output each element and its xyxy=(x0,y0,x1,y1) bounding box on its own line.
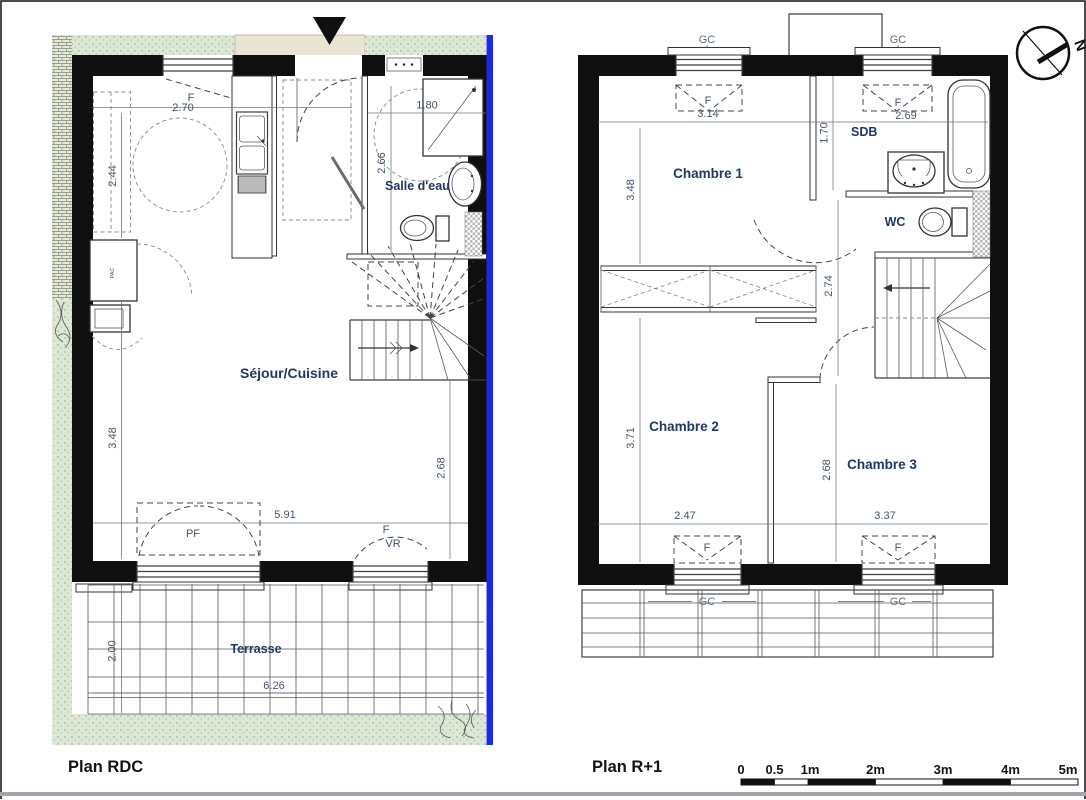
toilet-rdc xyxy=(401,216,450,242)
floor-plan-page: PAC xyxy=(0,0,1086,800)
plan-r1: GC GC xyxy=(578,14,1008,657)
rdc-top-window-kitchen xyxy=(163,55,233,98)
dim-value: 5.91 xyxy=(274,509,295,521)
bath-door-leaf xyxy=(332,157,364,209)
kitchen-hall-wall xyxy=(272,76,277,256)
dim-label: F xyxy=(705,95,712,107)
terrace-grid xyxy=(88,584,484,714)
garden-bottom xyxy=(72,714,486,745)
dim-value: 6.26 xyxy=(263,680,284,692)
scale-tick: 0.5 xyxy=(765,762,783,777)
room-label-wc: WC xyxy=(885,215,906,229)
washbasin-sdb xyxy=(888,152,944,193)
dim-label: F xyxy=(704,542,711,554)
hall-bath-wall xyxy=(362,76,368,254)
room-label-terrasse: Terrasse xyxy=(230,642,281,656)
hedge-strip xyxy=(52,35,72,300)
dim-value: 2.47 xyxy=(674,510,695,522)
dim-value: 2.66 xyxy=(376,152,388,173)
landing-door-swing xyxy=(754,220,856,263)
r1-top-window-left xyxy=(668,45,750,76)
dim-value: 3.48 xyxy=(107,427,119,448)
stair-direction-arrow xyxy=(410,344,419,352)
dim-value: 3.48 xyxy=(625,179,637,200)
room-label-sejour: Séjour/Cuisine xyxy=(240,365,338,381)
dim-label: F xyxy=(895,542,902,554)
plan-rdc-title: Plan RDC xyxy=(68,758,143,776)
shower xyxy=(423,79,483,156)
property-limit-line xyxy=(487,35,494,745)
ch3-door-swing xyxy=(820,327,874,379)
dim-value: 2.00 xyxy=(107,640,119,661)
dim-label: F xyxy=(895,97,902,109)
compass: N xyxy=(1017,27,1086,79)
ch2-ch3-wall xyxy=(768,377,774,563)
dim-value: 1.70 xyxy=(819,122,831,143)
scale-tick: 3m xyxy=(934,762,953,777)
turning-circle-kitchen xyxy=(133,118,227,212)
rdc-entry-door xyxy=(295,55,362,142)
room-label-chambre3: Chambre 3 xyxy=(847,457,917,472)
garden-top-left xyxy=(72,35,235,56)
kitchen-cabinets-dashed xyxy=(94,92,131,232)
pac-label: PAC xyxy=(110,268,116,279)
dim-value: 2.69 xyxy=(895,110,916,122)
rdc-window-f-vr xyxy=(349,561,432,590)
tile-strip-rdc xyxy=(465,212,482,256)
scale-tick: 0 xyxy=(737,762,744,777)
gc-label: GC xyxy=(699,34,716,46)
footer-rule xyxy=(0,792,1086,796)
garden-left xyxy=(52,300,72,745)
dim-value: 1.80 xyxy=(416,100,437,112)
toilet-r1 xyxy=(919,208,967,236)
tile-strip-r1 xyxy=(973,191,990,257)
scale-tick: 5m xyxy=(1059,762,1078,777)
r1-top-window-right xyxy=(855,45,940,76)
dim-value: 2.68 xyxy=(436,457,448,478)
dim-label: VR xyxy=(385,538,400,550)
dim-value: 2.44 xyxy=(107,165,119,186)
washbasin-rdc xyxy=(449,162,482,206)
scale-tick: 4m xyxy=(1001,762,1020,777)
ch2-landing-stub xyxy=(768,377,820,383)
ch1-landing-wall xyxy=(810,76,816,200)
scale-tick: 1m xyxy=(801,762,820,777)
vent-grille xyxy=(238,176,266,193)
room-label-chambre2: Chambre 2 xyxy=(649,419,719,434)
kitchen-counter xyxy=(232,76,272,258)
gc-label: GC xyxy=(890,34,907,46)
dim-value: 2.68 xyxy=(821,459,833,480)
closet-strip xyxy=(601,266,816,312)
floor-plan-drawing: PAC xyxy=(0,0,1086,800)
entry-walkway xyxy=(235,35,365,56)
closet-stub-wall xyxy=(756,318,816,323)
dim-label: PF xyxy=(186,528,200,540)
dim-value: 3.37 xyxy=(874,510,895,522)
scale-tick: 2m xyxy=(866,762,885,777)
bathtub xyxy=(948,80,990,188)
room-label-chambre1: Chambre 1 xyxy=(673,166,743,181)
gc-label: GC xyxy=(699,596,716,608)
dim-value: 2.74 xyxy=(823,275,835,296)
plan-r1-title: Plan R+1 xyxy=(592,758,662,776)
north-label: N xyxy=(1070,38,1086,54)
dim-label: F xyxy=(383,524,390,536)
entry-hall-dashed xyxy=(283,80,351,220)
scale-bar: 0 0.5 1m 2m 3m 4m 5m xyxy=(737,762,1078,785)
dim-value: 2.70 xyxy=(172,102,193,114)
plan-rdc: PAC xyxy=(52,17,493,745)
stairs-r1 xyxy=(875,258,990,378)
balcony-grid: GC GC xyxy=(582,590,993,657)
pac-closet: PAC xyxy=(90,240,192,350)
room-label-salle-eau: Salle d'eau xyxy=(385,179,450,193)
dim-value: 3.71 xyxy=(625,427,637,448)
rdc-top-window-bathroom xyxy=(385,55,423,76)
dim-value: 3.14 xyxy=(697,108,718,120)
gc-label: GC xyxy=(890,596,907,608)
room-label-sdb: SDB xyxy=(851,125,877,139)
stair-direction-arrow-r1 xyxy=(883,284,892,292)
shower-head-icon xyxy=(472,88,476,92)
stairs-rdc xyxy=(350,243,486,380)
garden-top-right xyxy=(365,35,486,56)
